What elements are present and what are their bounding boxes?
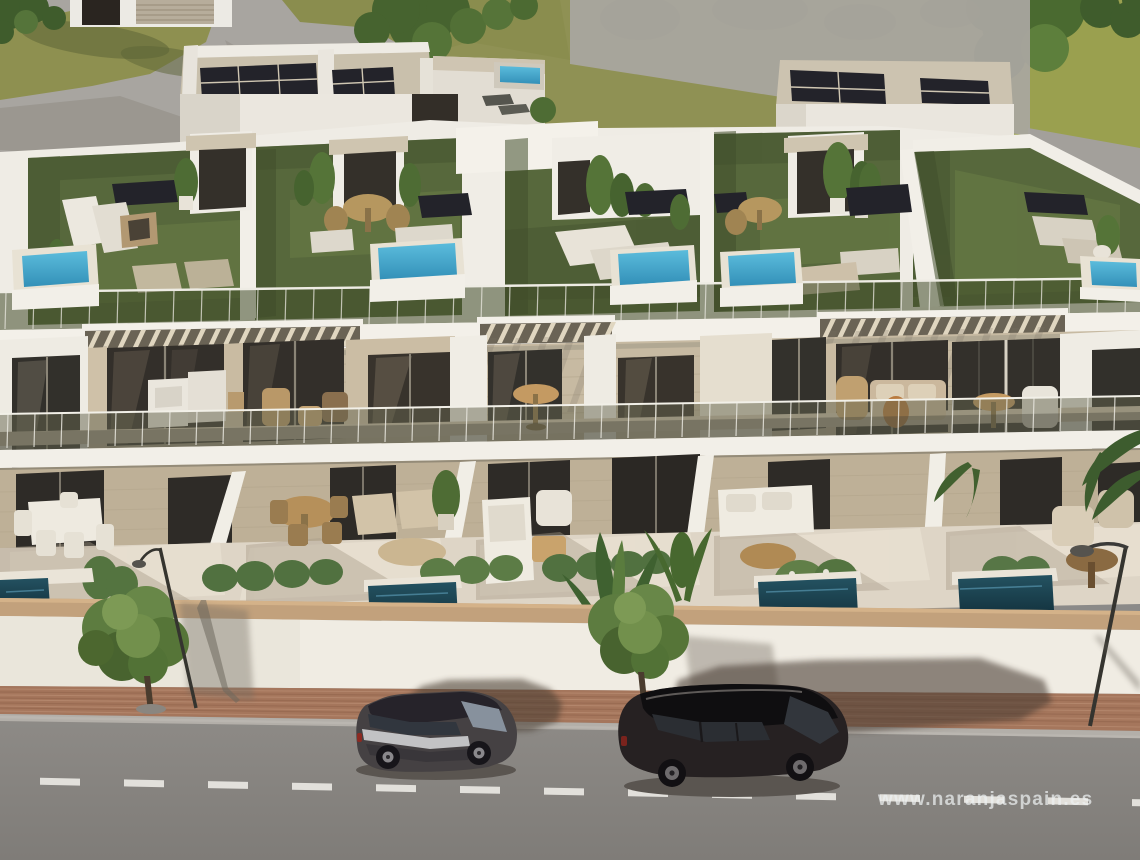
svg-text:www.naranjaspain.es: www.naranjaspain.es: [877, 789, 1093, 810]
